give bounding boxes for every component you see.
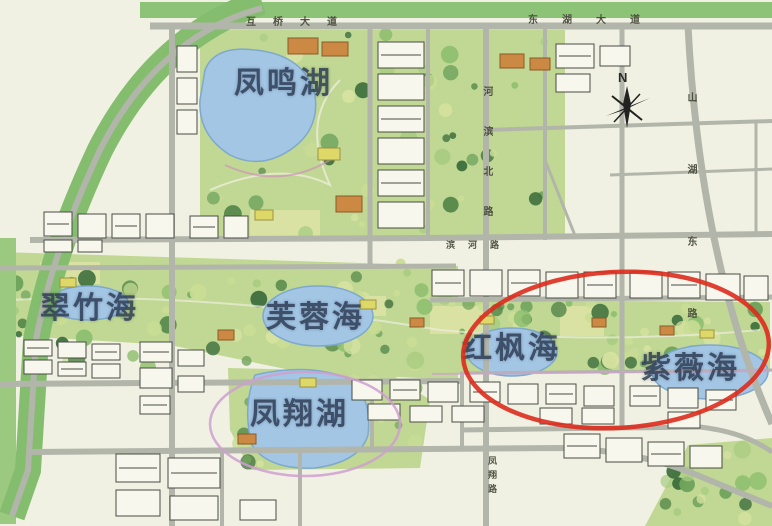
compass-star-icon (606, 86, 650, 128)
label-road-top-left: 互桥大道 (246, 13, 354, 28)
label-fengxiang-lake: 凤翔湖 (250, 389, 349, 433)
label-furong-sea: 芙蓉海 (266, 292, 365, 336)
label-fengming-lake: 凤鸣湖 (234, 58, 333, 102)
label-road-mid-vertical: 河滨北路 (479, 86, 494, 246)
compass-north-label: N (618, 70, 627, 85)
plan-map-graphic (0, 0, 772, 526)
label-road-right-vertical: 山湖东路 (683, 92, 698, 380)
label-road-top-right: 东湖大道 (528, 11, 664, 26)
label-hongfeng-sea: 红枫海 (462, 323, 561, 367)
label-cuizhu-sea: 翠竹海 (40, 283, 139, 327)
label-road-center-small: 滨河路 (446, 238, 512, 251)
label-road-bottom-vertical: 凤翔路 (486, 456, 499, 498)
map-canvas: 凤鸣湖 翠竹海 芙蓉海 红枫海 紫薇海 凤翔湖 互桥大道 东湖大道 河滨北路 山… (0, 0, 772, 526)
